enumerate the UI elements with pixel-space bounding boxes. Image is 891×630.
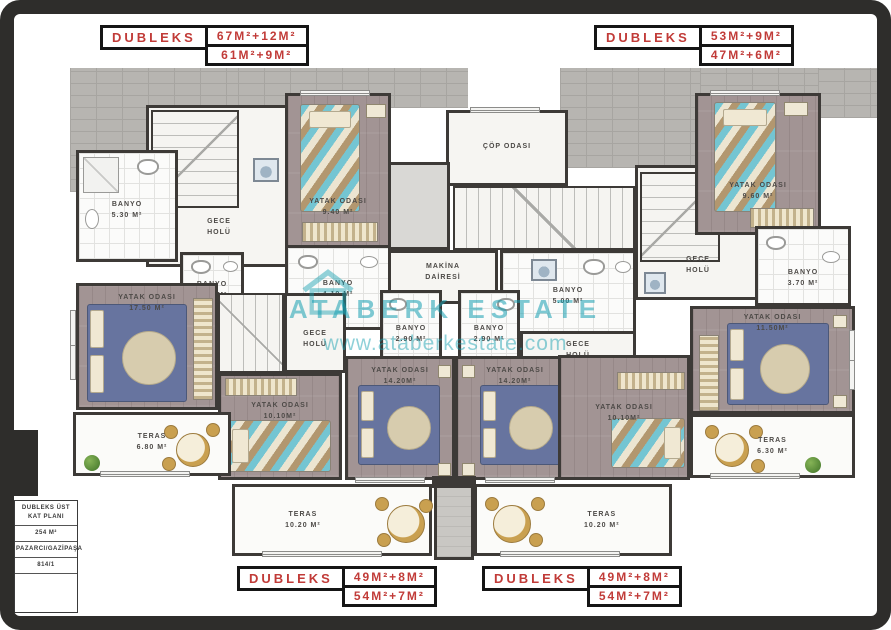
chair — [162, 457, 176, 471]
plan-location: PAZARCI/GAZİPAŞA — [15, 542, 77, 558]
room-area: 2.90 M² — [396, 336, 427, 343]
plant — [805, 457, 821, 473]
window — [355, 477, 425, 483]
room-label: YATAK ODASI — [595, 404, 653, 411]
room-label: ÇÖP ODASI — [483, 143, 531, 150]
room-yatak-1150: YATAK ODASI 11.50M² — [690, 306, 855, 414]
double-bed — [358, 385, 440, 465]
room-label: TERAS — [587, 511, 616, 518]
stair-treads — [218, 293, 284, 373]
badge-title: DUBLEKS — [100, 25, 208, 50]
room-label: BANYO — [474, 325, 504, 332]
chair — [377, 533, 391, 547]
wardrobe — [302, 222, 378, 242]
brick-texture — [560, 68, 710, 168]
window — [500, 551, 620, 557]
room-teras-680: TERAS 6.80 M² — [73, 412, 231, 476]
washing-machine-icon — [531, 259, 557, 281]
chair — [419, 499, 433, 513]
sink-icon — [615, 261, 631, 273]
room-yatak-1420-right: YATAK ODASI 14.20M² — [455, 356, 575, 480]
room-yatak-940: YATAK ODASI 9.40 M² — [285, 93, 391, 257]
room-label: YATAK ODASI — [486, 367, 544, 374]
bed-throw — [387, 406, 431, 450]
room-area: 5.00 M² — [553, 298, 584, 305]
room-area: 9.40 M² — [323, 209, 354, 216]
room-label: BANYO — [396, 325, 426, 332]
room-area: 6.30 M² — [757, 448, 788, 455]
room-label: BANYO — [112, 201, 142, 208]
pillow — [361, 428, 374, 458]
washing-machine-icon — [253, 158, 279, 182]
room-yatak-1420-left: YATAK ODASI 14.20M² — [345, 356, 455, 480]
plan-total-area: 254 M² — [15, 526, 77, 542]
room-area: 9.60 M² — [743, 193, 774, 200]
frame-tab — [14, 430, 38, 496]
window — [262, 551, 382, 557]
room-area: 10.20 M² — [584, 522, 620, 529]
toilet-icon — [137, 159, 159, 175]
nightstand — [462, 463, 475, 476]
badge-bottom-right: DUBLEKS 49M²+8M² 54M²+7M² — [482, 566, 682, 607]
window — [70, 310, 76, 380]
wardrobe — [750, 208, 814, 228]
pillow — [723, 109, 767, 126]
badge-area-value: 47M²+6M² — [699, 44, 794, 66]
toilet-icon — [389, 298, 407, 311]
room-label: YATAK ODASI — [251, 402, 309, 409]
room-teras-630: TERAS 6.30 M² — [690, 414, 855, 478]
sink-icon — [822, 251, 840, 263]
plan-title-line1: DUBLEKS ÜST — [22, 505, 70, 511]
badge-area-value: 54M²+7M² — [342, 585, 437, 607]
badge-area-value: 61M²+9M² — [205, 44, 309, 66]
room-area: 17.50 M² — [129, 305, 165, 312]
room-label: TERAS — [758, 437, 787, 444]
room-label: BANYO — [553, 287, 583, 294]
room-area: DAİRESİ — [425, 274, 460, 281]
double-bed — [480, 385, 562, 465]
window — [485, 477, 555, 483]
badge-title: DUBLEKS — [237, 566, 345, 591]
chair — [529, 533, 543, 547]
wardrobe — [225, 378, 297, 396]
wall-segment — [432, 476, 476, 488]
toilet-icon — [191, 260, 211, 274]
wardrobe — [617, 372, 685, 390]
room-area: HOLÜ — [303, 341, 327, 348]
window — [100, 471, 190, 477]
pillow — [483, 391, 496, 421]
nightstand — [366, 104, 386, 118]
room-label: GECE — [686, 256, 710, 263]
plant — [84, 455, 100, 471]
shower-icon — [83, 157, 119, 193]
room-yatak-960: YATAK ODASI 9.60 M² — [695, 93, 821, 235]
room-label: MAKİNA — [426, 263, 460, 270]
pillow — [361, 391, 374, 421]
room-yatak-1010-left: YATAK ODASI 10.10M² — [218, 373, 342, 480]
room-cop-odasi: ÇÖP ODASI — [446, 110, 568, 186]
room-area: HOLÜ — [686, 267, 710, 274]
window — [300, 90, 370, 96]
pillow — [90, 310, 104, 348]
room-yatak-1010-right: YATAK ODASI 10.10M² — [558, 355, 690, 480]
bed-throw — [122, 331, 176, 385]
toilet-icon — [766, 236, 786, 250]
pillow — [232, 429, 249, 463]
sink-icon — [360, 256, 378, 268]
chair — [485, 497, 499, 511]
nightstand — [833, 395, 847, 408]
floor-plan-page: GECE HOLÜ GECE HOLÜ GECE HOLÜ ÇÖP ODASI … — [0, 0, 891, 630]
room-banyo-500: BANYO 5.00 M² — [500, 250, 636, 334]
room-area: 10.10M² — [264, 413, 297, 420]
room-area: 6.80 M² — [137, 444, 168, 451]
toilet-icon — [583, 259, 605, 275]
room-label: YATAK ODASI — [744, 314, 802, 321]
plan-plot-number: 814/1 — [15, 558, 77, 574]
room-area: 3.70 M² — [788, 280, 819, 287]
plan-title-line2: KAT PLANI — [28, 514, 64, 520]
room-label: GECE — [207, 218, 231, 225]
double-bed — [727, 323, 829, 405]
room-label: YATAK ODASI — [309, 198, 367, 205]
room-area: 14.20M² — [499, 378, 532, 385]
wardrobe — [699, 335, 719, 411]
bed-throw — [509, 406, 553, 450]
room-area: 10.10M² — [608, 415, 641, 422]
room-label: GECE — [566, 341, 590, 348]
room-label: BANYO — [788, 269, 818, 276]
pillow — [90, 355, 104, 393]
nightstand — [438, 463, 451, 476]
badge-bottom-left: DUBLEKS 49M²+8M² 54M²+7M² — [237, 566, 437, 607]
room-label: YATAK ODASI — [729, 182, 787, 189]
nightstand — [784, 102, 808, 116]
pillow — [309, 111, 351, 128]
room-label: YATAK ODASI — [371, 367, 429, 374]
room-area: HOLÜ — [207, 229, 231, 236]
badge-top-right: DUBLEKS 53M²+9M² 47M²+6M² — [594, 25, 794, 66]
badge-title: DUBLEKS — [594, 25, 702, 50]
toilet-icon — [497, 298, 515, 311]
room-area: 5.30 M² — [112, 212, 143, 219]
room-label: TERAS — [138, 433, 167, 440]
pillow — [483, 428, 496, 458]
round-table — [493, 505, 531, 543]
plan-title-block: DUBLEKS ÜST KAT PLANI 254 M² PAZARCI/GAZ… — [14, 500, 78, 613]
stair-treads — [453, 186, 635, 250]
room-label: YATAK ODASI — [118, 294, 176, 301]
double-bed — [87, 304, 187, 402]
window — [710, 90, 780, 96]
room-banyo-530: BANYO 5.30 M² — [76, 150, 178, 262]
sink-icon — [223, 261, 238, 272]
elevator-shaft — [388, 162, 450, 250]
room-area: 11.50M² — [756, 325, 788, 332]
window — [710, 473, 800, 479]
room-banyo-290-right: BANYO 2.90 M² — [458, 290, 520, 362]
room-banyo-370: BANYO 3.70 M² — [755, 226, 851, 306]
room-teras-1020-right: TERAS 10.20 M² — [474, 484, 672, 556]
round-table — [387, 505, 425, 543]
bed-throw — [760, 344, 810, 394]
badge-title: DUBLEKS — [482, 566, 590, 591]
single-bed — [227, 420, 331, 472]
house-icon — [300, 268, 356, 316]
chair — [375, 497, 389, 511]
room-yatak-1750: YATAK ODASI 17.50 M² — [76, 283, 218, 410]
room-area: 2.90 M² — [474, 336, 505, 343]
window — [470, 107, 540, 113]
badge-area-value: 54M²+7M² — [587, 585, 682, 607]
room-label: GECE — [303, 330, 327, 337]
pillow — [664, 427, 681, 459]
room-banyo-290-left: BANYO 2.90 M² — [380, 290, 442, 362]
room-teras-1020-left: TERAS 10.20 M² — [232, 484, 432, 556]
room-area: 14.20M² — [384, 378, 417, 385]
toilet-icon — [298, 255, 318, 269]
room-area: 10.20 M² — [285, 522, 321, 529]
room-label: TERAS — [289, 511, 318, 518]
pillow — [730, 368, 744, 400]
window — [849, 330, 855, 390]
badge-top-left: DUBLEKS 67M²+12M² 61M²+9M² — [100, 25, 309, 66]
single-bed — [611, 418, 685, 468]
chair — [751, 459, 765, 473]
concrete-column — [434, 484, 474, 560]
brick-texture — [818, 68, 878, 118]
